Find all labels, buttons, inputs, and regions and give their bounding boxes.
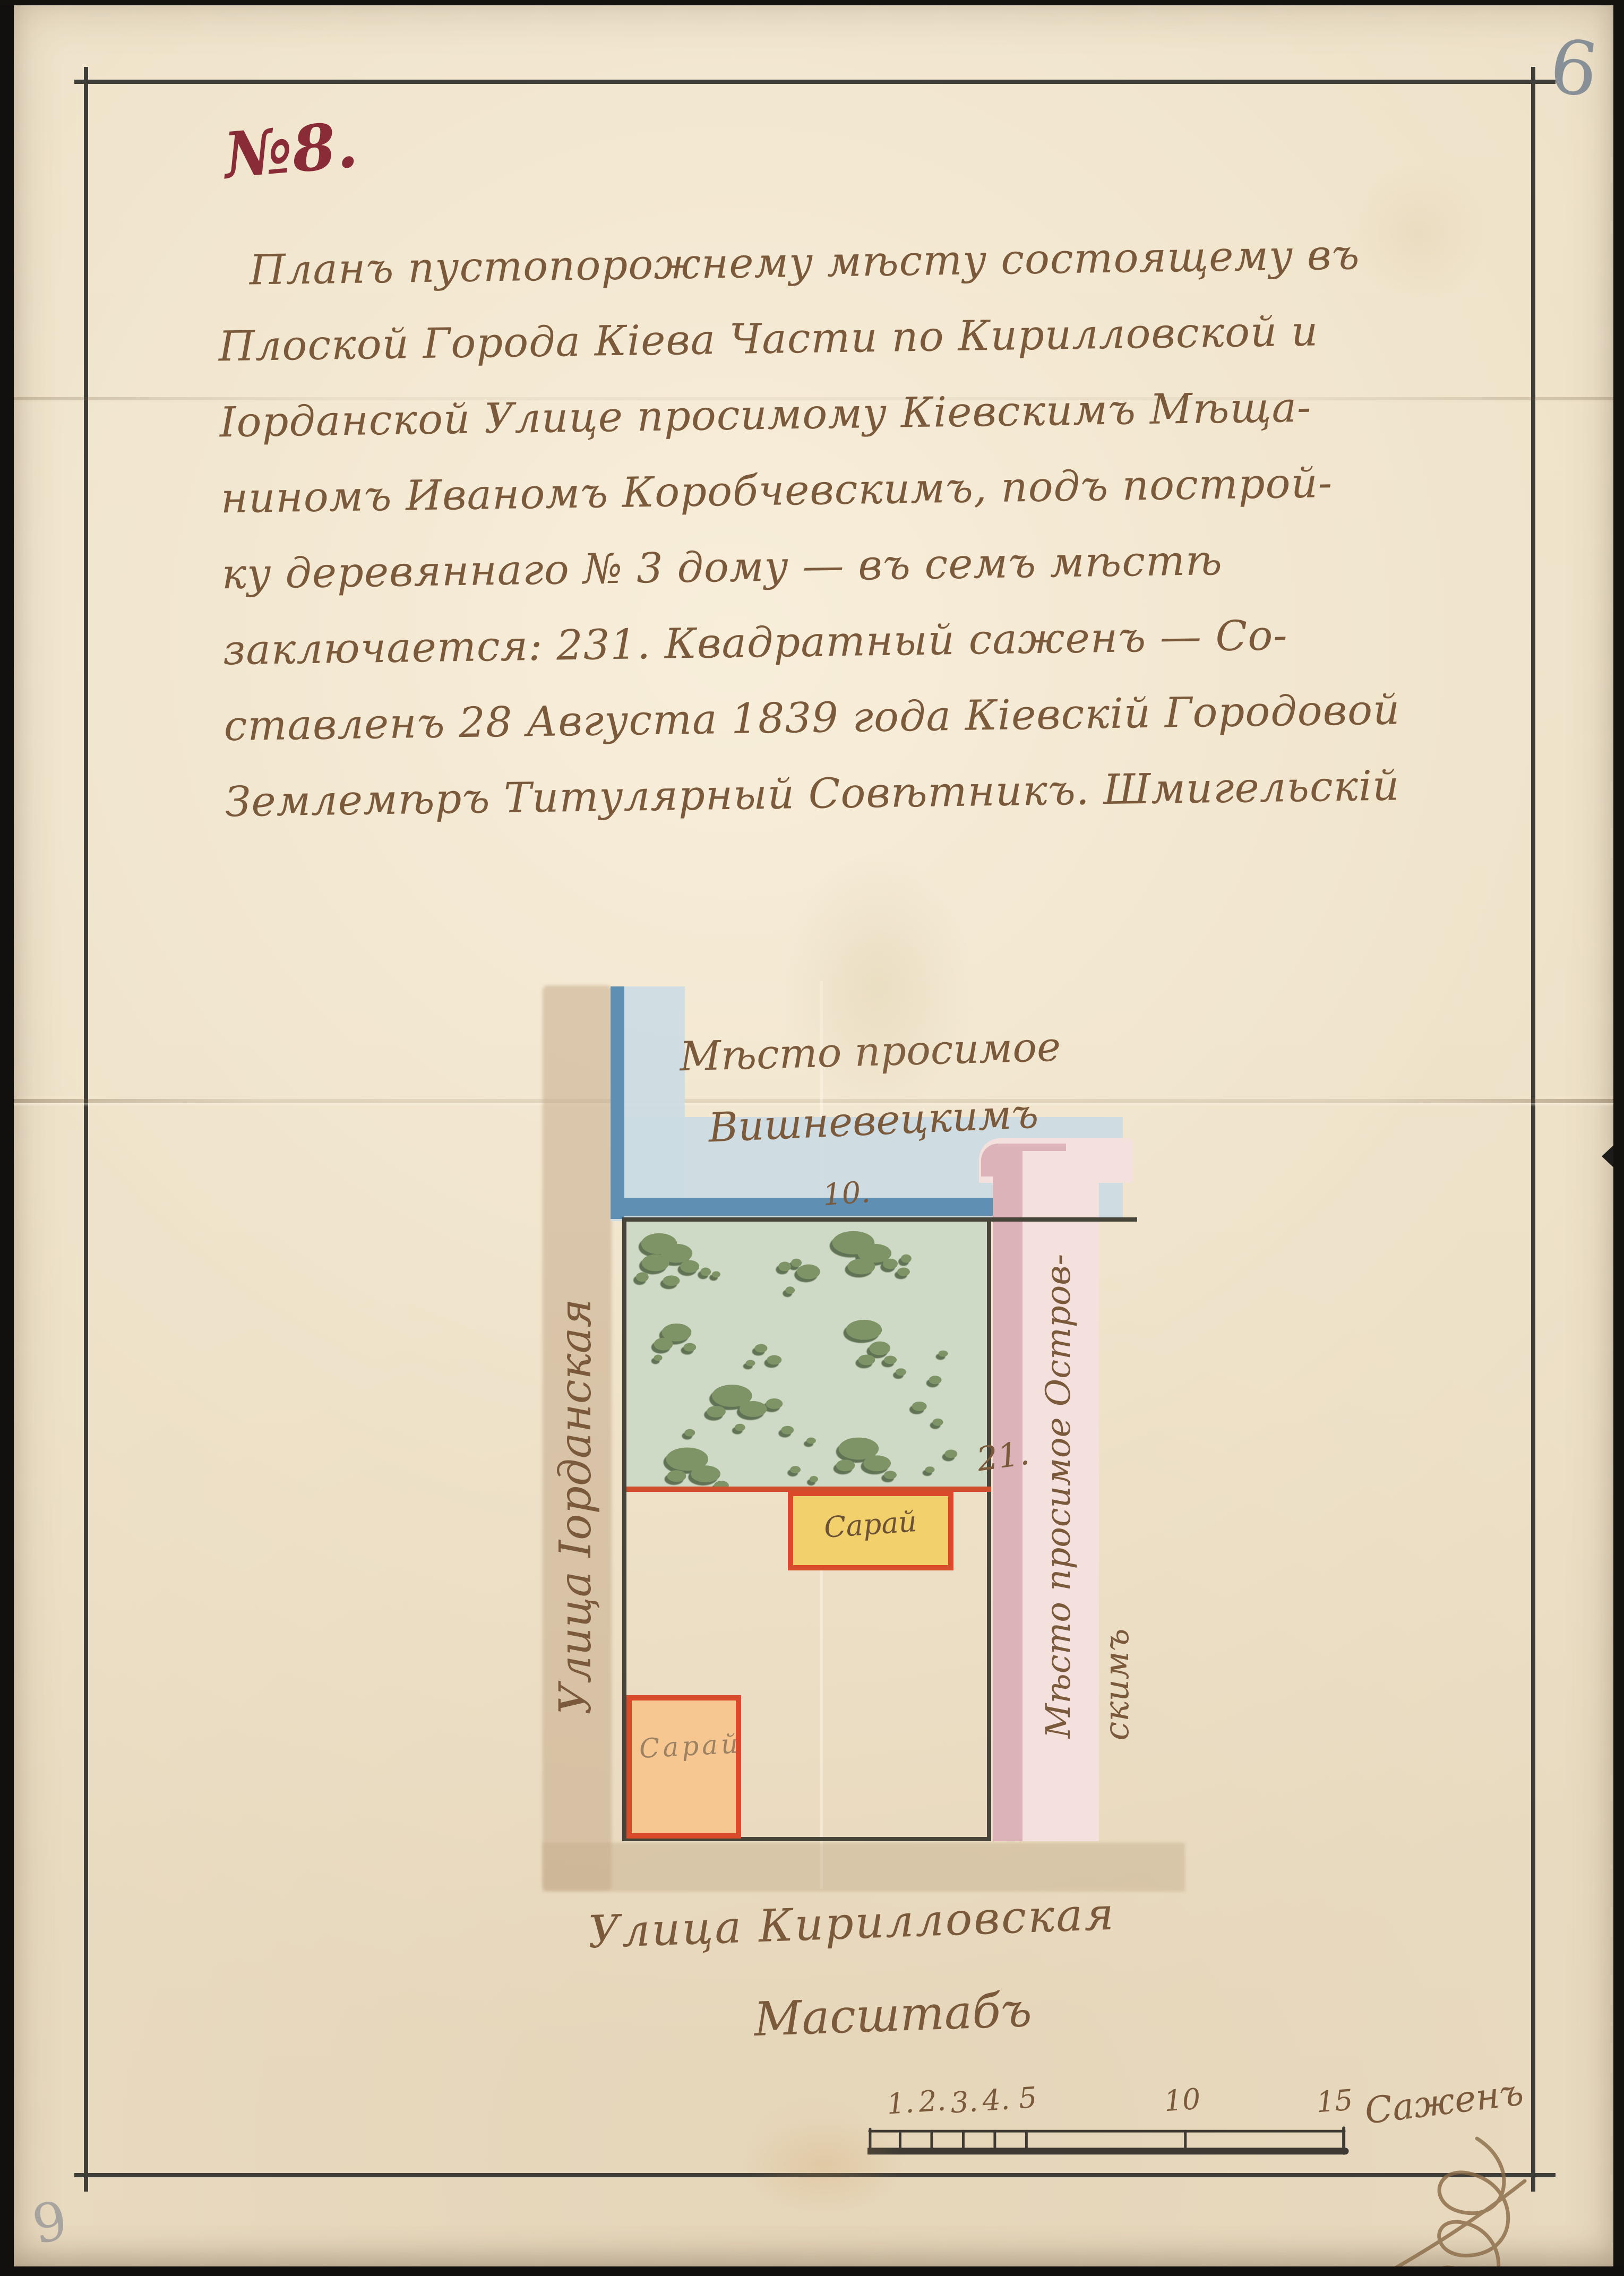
street-bottom-label: Улица Кирилловская (587, 1888, 1116, 1959)
neighbor-right-rose-band (993, 1151, 1022, 1841)
neighbor-top-blue-edge-vertical (611, 986, 624, 1219)
scale-tick-label: 15 (1316, 2083, 1354, 2119)
plot-top-line-extension (991, 1217, 1137, 1222)
page-number: 6 (1544, 23, 1603, 115)
scale-tick-label: 1. (886, 2085, 915, 2120)
doc-number: №8. (221, 107, 360, 192)
frame-left-line (84, 67, 88, 2192)
corner-mark: 9 (28, 2189, 72, 2256)
scanned-plan-page: 6 №8. Планъ пустопорожнему мѣсту состоящ… (0, 0, 1624, 2276)
scale-tick-label: 3. (949, 2084, 979, 2119)
scale-tick-label: 2. (917, 2083, 947, 2118)
stain (781, 854, 973, 1119)
neighbor-top-label-line1: Мѣсто просимое (679, 1023, 1061, 1080)
paper-tear (1597, 1140, 1619, 1172)
house-building (626, 1695, 741, 1839)
scale-tick-label: 5 (1018, 2081, 1038, 2115)
frame-top-line (74, 80, 1556, 84)
scale-tick-label: 4. (981, 2082, 1011, 2117)
scale-title: Масштабъ (753, 1982, 1033, 2047)
signature-flourish (1222, 2123, 1551, 2276)
shed-label: Сарай (823, 1505, 918, 1544)
house-label: Сарай (639, 1728, 742, 1764)
body-text: Планъ пустопорожнему мѣсту состоящему въ… (217, 229, 1542, 855)
dimension-21: 21. (974, 1433, 1032, 1479)
scale-tick-label: 10 (1163, 2082, 1202, 2118)
paper-sheet: 6 №8. Планъ пустопорожнему мѣсту состоящ… (12, 4, 1616, 2266)
garden-bushes (626, 1222, 987, 1491)
dimension-10: 10. (822, 1175, 871, 1213)
street-bottom-wash (543, 1843, 1185, 1892)
